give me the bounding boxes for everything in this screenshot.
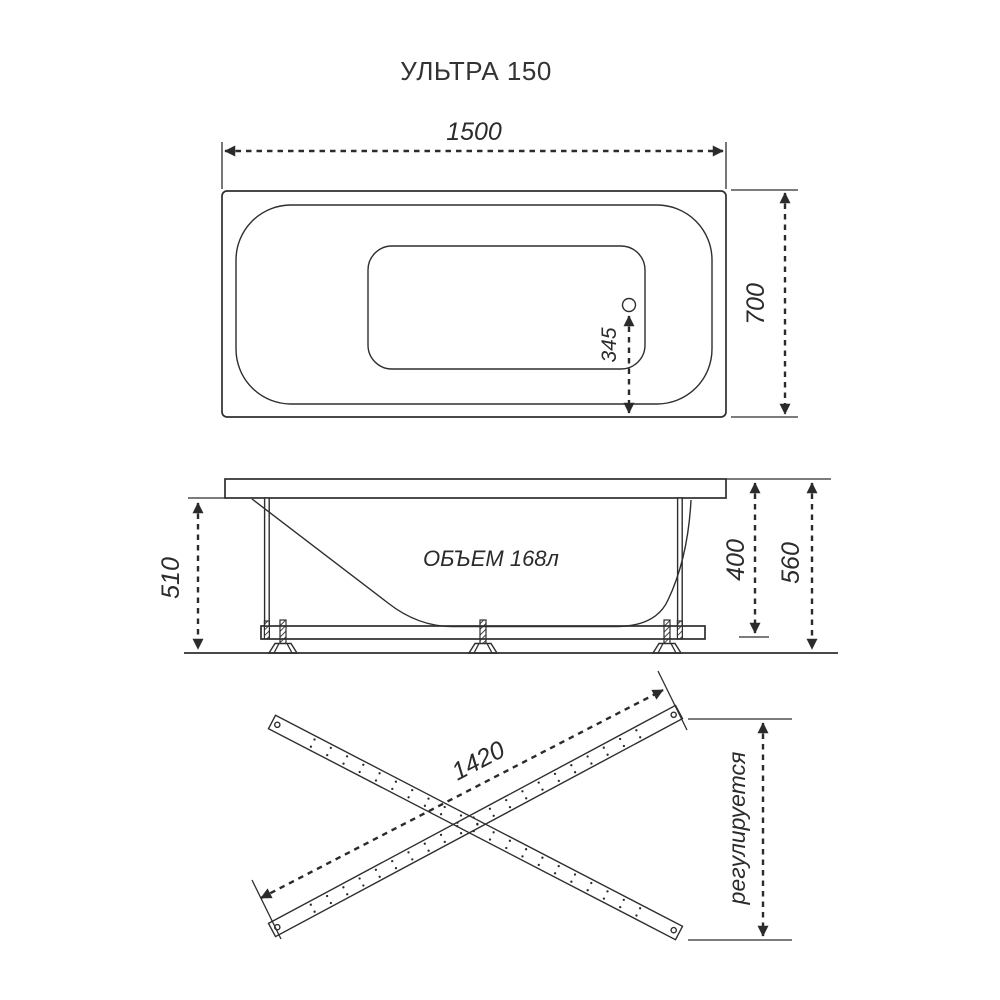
side-view: ОБЪЕМ 168л 510 400 560: [157, 479, 838, 653]
frame-view: 1420 регулируется: [252, 671, 792, 940]
post-screw-left: [264, 621, 269, 639]
adjustable-label: регулируется: [724, 752, 750, 906]
dim-label-560: 560: [777, 542, 805, 584]
top-view: 1500 345 700: [222, 118, 798, 417]
tub-rim-edge: [236, 205, 712, 404]
drawing-page: УЛЬТРА 150 1500 345 700: [0, 0, 1000, 1000]
ext-1420-right: [658, 671, 687, 730]
rail-b-end-hole-right: [671, 928, 676, 933]
dim-label-510: 510: [157, 557, 185, 599]
dim-label-400: 400: [722, 539, 750, 581]
rail-b-end-hole-left: [275, 722, 280, 727]
dim-width: 700: [731, 190, 798, 417]
dim-560: 560: [777, 483, 812, 649]
dim-line-1420: [261, 690, 663, 898]
rail-a: [269, 705, 683, 936]
dim-400: 400: [722, 483, 769, 637]
dim-length: 1500: [222, 118, 726, 189]
dim-label-1420: 1420: [447, 736, 509, 787]
dim-drain-offset: 345: [598, 316, 629, 413]
volume-label: ОБЪЕМ 168л: [423, 546, 559, 571]
drain-hole: [623, 299, 636, 312]
dim-rail-length: 1420: [252, 671, 687, 939]
ext-1420-left: [252, 880, 281, 939]
dim-label-700: 700: [742, 283, 770, 325]
tub-outer-edge: [222, 191, 726, 417]
drawing-title: УЛЬТРА 150: [400, 56, 552, 86]
technical-drawing: УЛЬТРА 150 1500 345 700: [0, 0, 1000, 1000]
dim-adjustable: регулируется: [688, 719, 792, 940]
dim-510: 510: [157, 503, 198, 649]
rim-slab: [225, 479, 726, 498]
dim-label-1500: 1500: [446, 118, 502, 146]
rail-a-end-hole-right: [671, 712, 676, 717]
post-screw-right: [677, 621, 682, 639]
support-post-left: [265, 498, 270, 626]
dim-label-345: 345: [598, 327, 621, 362]
